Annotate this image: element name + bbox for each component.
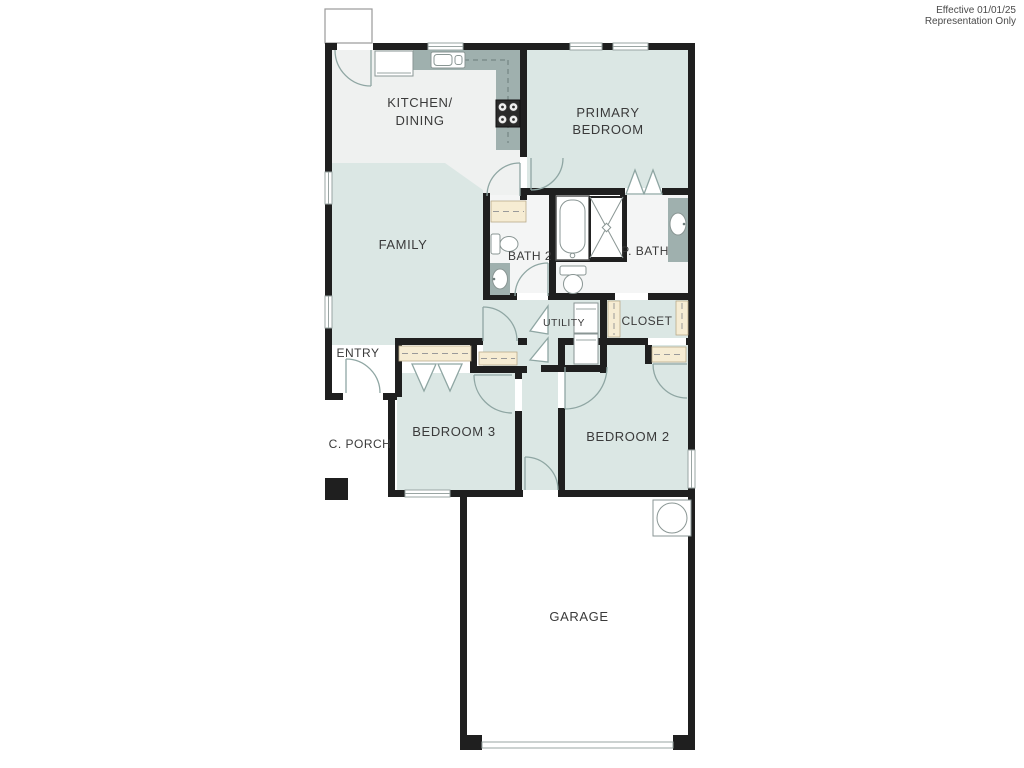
stoop — [325, 9, 372, 43]
front-door — [346, 359, 380, 393]
shower — [590, 197, 623, 258]
bedroom3-label: BEDROOM 3 — [412, 424, 495, 439]
refrigerator — [375, 51, 413, 76]
entry-label: ENTRY — [337, 346, 380, 360]
kitchen-sink — [431, 52, 465, 68]
family-window-2 — [325, 296, 332, 328]
bathtub — [556, 196, 589, 260]
vanity-sink-pbath — [668, 198, 688, 262]
kitchen-window — [428, 43, 463, 50]
pbath-label: P. BATH — [621, 244, 669, 258]
family-window-1 — [325, 172, 332, 204]
garage-door — [482, 742, 673, 748]
bedroom2-label: BEDROOM 2 — [586, 429, 669, 444]
kitchen-label-line1: KITCHEN/ — [387, 95, 452, 110]
washer-dryer — [574, 303, 598, 364]
porch-post — [325, 478, 348, 500]
water-heater — [653, 500, 691, 536]
garage-label: GARAGE — [549, 609, 608, 624]
family-floor — [332, 163, 483, 345]
vanity-sink-bath2 — [490, 263, 510, 295]
kitchen-label-line2: DINING — [395, 113, 444, 128]
annotation-line2: Representation Only — [925, 16, 1016, 27]
stove — [496, 100, 520, 127]
porch-label: C. PORCH — [329, 437, 392, 451]
primary-window-1 — [570, 43, 602, 50]
primary-label-line1: PRIMARY — [576, 105, 639, 120]
family-label: FAMILY — [379, 237, 428, 252]
annotation-line1: Effective 01/01/25 — [936, 5, 1016, 16]
floor-plan-page: KITCHEN/ DINING PRIMARY BEDROOM FAMILY B… — [0, 0, 1024, 768]
primary-label-line2: BEDROOM — [572, 122, 643, 137]
bedroom2-window — [688, 450, 695, 488]
closet-label: CLOSET — [621, 314, 672, 328]
utility-label: UTILITY — [543, 317, 585, 329]
primary-window-2 — [613, 43, 648, 50]
bedroom3-window — [405, 490, 450, 497]
annotation: Effective 01/01/25 Representation Only — [925, 5, 1017, 27]
bath2-label: BATH 2 — [508, 249, 552, 263]
floor-plan: KITCHEN/ DINING PRIMARY BEDROOM FAMILY B… — [0, 0, 1024, 768]
